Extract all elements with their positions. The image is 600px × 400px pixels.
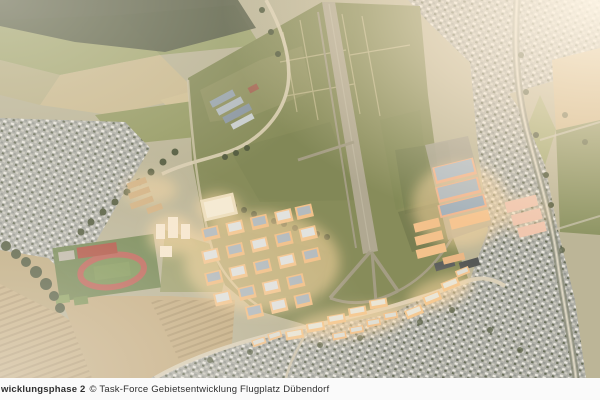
caption-phase-label: wicklungsphase 2 bbox=[1, 384, 86, 395]
caption-credit: © Task-Force Gebietsentwicklung Flugplat… bbox=[90, 384, 330, 395]
caption-bar: wicklungsphase 2 © Task-Force Gebietsent… bbox=[0, 378, 600, 400]
aerial-rendering-duebendorf bbox=[0, 0, 600, 378]
slide-frame: wicklungsphase 2 © Task-Force Gebietsent… bbox=[0, 0, 600, 400]
sun-glare bbox=[0, 0, 600, 378]
